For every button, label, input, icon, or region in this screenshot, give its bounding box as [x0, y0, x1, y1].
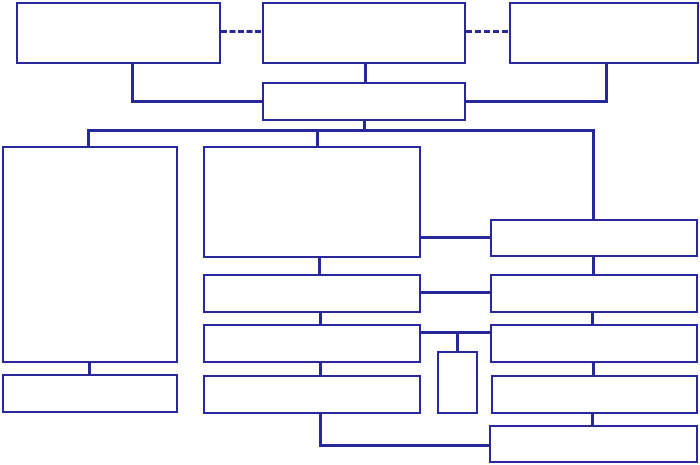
connector-center-row-1-to-right-2 — [419, 291, 492, 294]
connector-right-3-to-4 — [592, 361, 595, 376]
node-right-2 — [490, 274, 698, 313]
connector-bottom-to-right-5 — [319, 444, 491, 447]
connector-center-row-2-to-3 — [319, 361, 322, 376]
connector-exec-left-drop — [131, 62, 134, 103]
connector-right-2-to-3 — [591, 311, 594, 325]
dashed-link-exec-left-center — [221, 30, 261, 33]
node-center-row-1 — [203, 274, 421, 313]
node-right-3 — [490, 324, 698, 363]
connector-right-4-to-5 — [591, 412, 594, 426]
connector-center-row-3-drop — [319, 412, 322, 447]
dashed-link-exec-center-right — [466, 30, 508, 33]
connector-bus-to-left-main — [87, 129, 90, 147]
node-exec-right — [509, 2, 699, 64]
connector-left-main-to-footer — [88, 361, 91, 375]
connector-hub-to-exec-right — [464, 100, 608, 103]
node-hub — [262, 82, 466, 121]
node-center-row-3 — [203, 375, 421, 414]
connector-branch-to-small-upright — [456, 331, 459, 352]
node-center-main — [203, 146, 421, 258]
flowchart-canvas — [0, 0, 700, 465]
node-right-1 — [490, 219, 698, 257]
connector-right-1-to-2 — [592, 255, 595, 275]
connector-exec-right-drop — [605, 62, 608, 103]
connector-center-main-to-right-1 — [419, 236, 492, 239]
node-right-5 — [489, 425, 698, 463]
connector-bus-to-center-main — [316, 129, 319, 147]
connector-center-main-to-row-1 — [318, 256, 321, 275]
node-center-row-2 — [203, 324, 421, 363]
node-left-footer — [2, 374, 178, 413]
node-left-main — [2, 146, 178, 363]
node-small-upright — [437, 351, 478, 414]
connector-bus-to-right-1 — [592, 129, 595, 220]
node-exec-left — [16, 2, 221, 64]
connector-center-row-1-to-2 — [319, 311, 322, 325]
connector-exec-left-to-hub — [131, 100, 264, 103]
node-exec-center — [262, 2, 466, 64]
connector-exec-center-to-hub — [364, 62, 367, 83]
node-right-4 — [491, 375, 698, 414]
bus-line — [87, 129, 595, 132]
